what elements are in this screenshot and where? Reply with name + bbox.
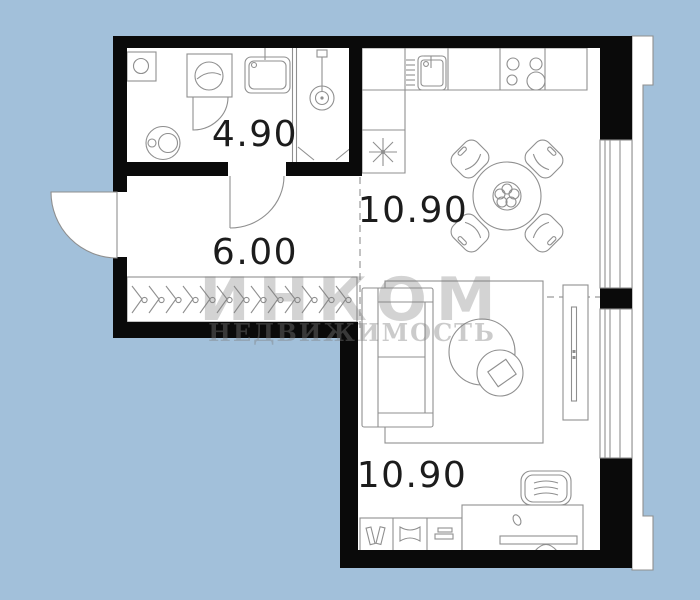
watermark-subtitle: НЕДВИЖИМОСТЬ xyxy=(208,318,496,347)
tv-console-icon xyxy=(563,285,588,420)
area-label-kitchen-dining: 10.90 xyxy=(358,190,469,231)
watermark: ИНКОМ НЕДВИЖИМОСТЬ xyxy=(199,265,504,347)
toilet-icon xyxy=(146,127,180,160)
window-lower xyxy=(600,309,632,458)
dining-table-icon xyxy=(473,162,541,230)
floorplan-svg: 4.90 6.00 10.90 10.90 ИНКОМ НЕДВИЖИМОСТЬ xyxy=(0,0,700,600)
office-chair-icon xyxy=(521,471,571,505)
bathroom-cabinet-icon xyxy=(127,52,156,81)
fridge-snowflake-icon xyxy=(369,138,397,166)
bookshelf-icon xyxy=(360,518,462,552)
window-upper xyxy=(600,140,632,288)
desk-icon xyxy=(462,505,583,552)
area-label-living: 10.90 xyxy=(357,455,468,496)
area-label-bathroom: 4.90 xyxy=(212,114,298,155)
